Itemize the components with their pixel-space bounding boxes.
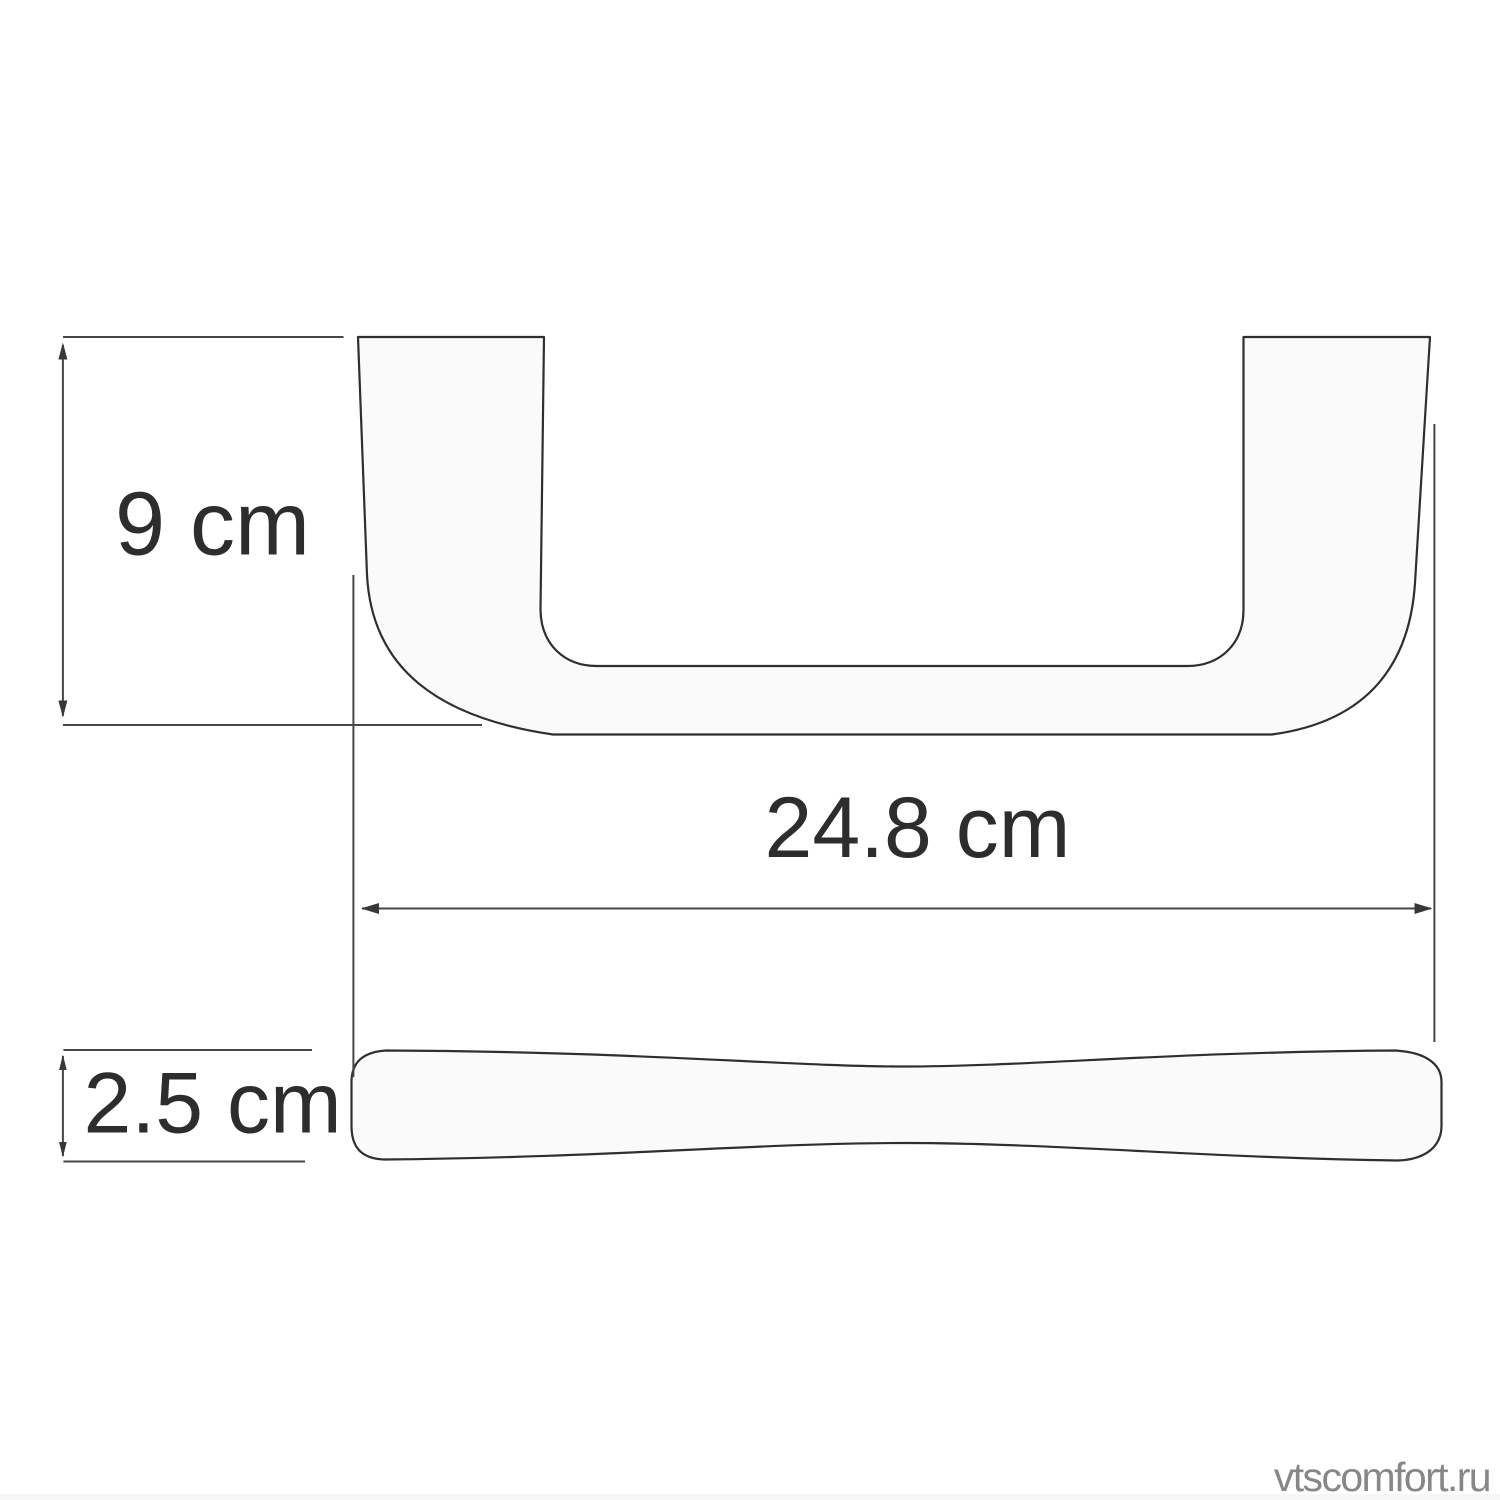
- svg-text:2.5 cm: 2.5 cm: [84, 1056, 342, 1152]
- svg-text:vtscomfort.ru: vtscomfort.ru: [1274, 1454, 1490, 1500]
- svg-text:24.8 cm: 24.8 cm: [765, 780, 1071, 876]
- svg-text:9 cm: 9 cm: [115, 475, 310, 575]
